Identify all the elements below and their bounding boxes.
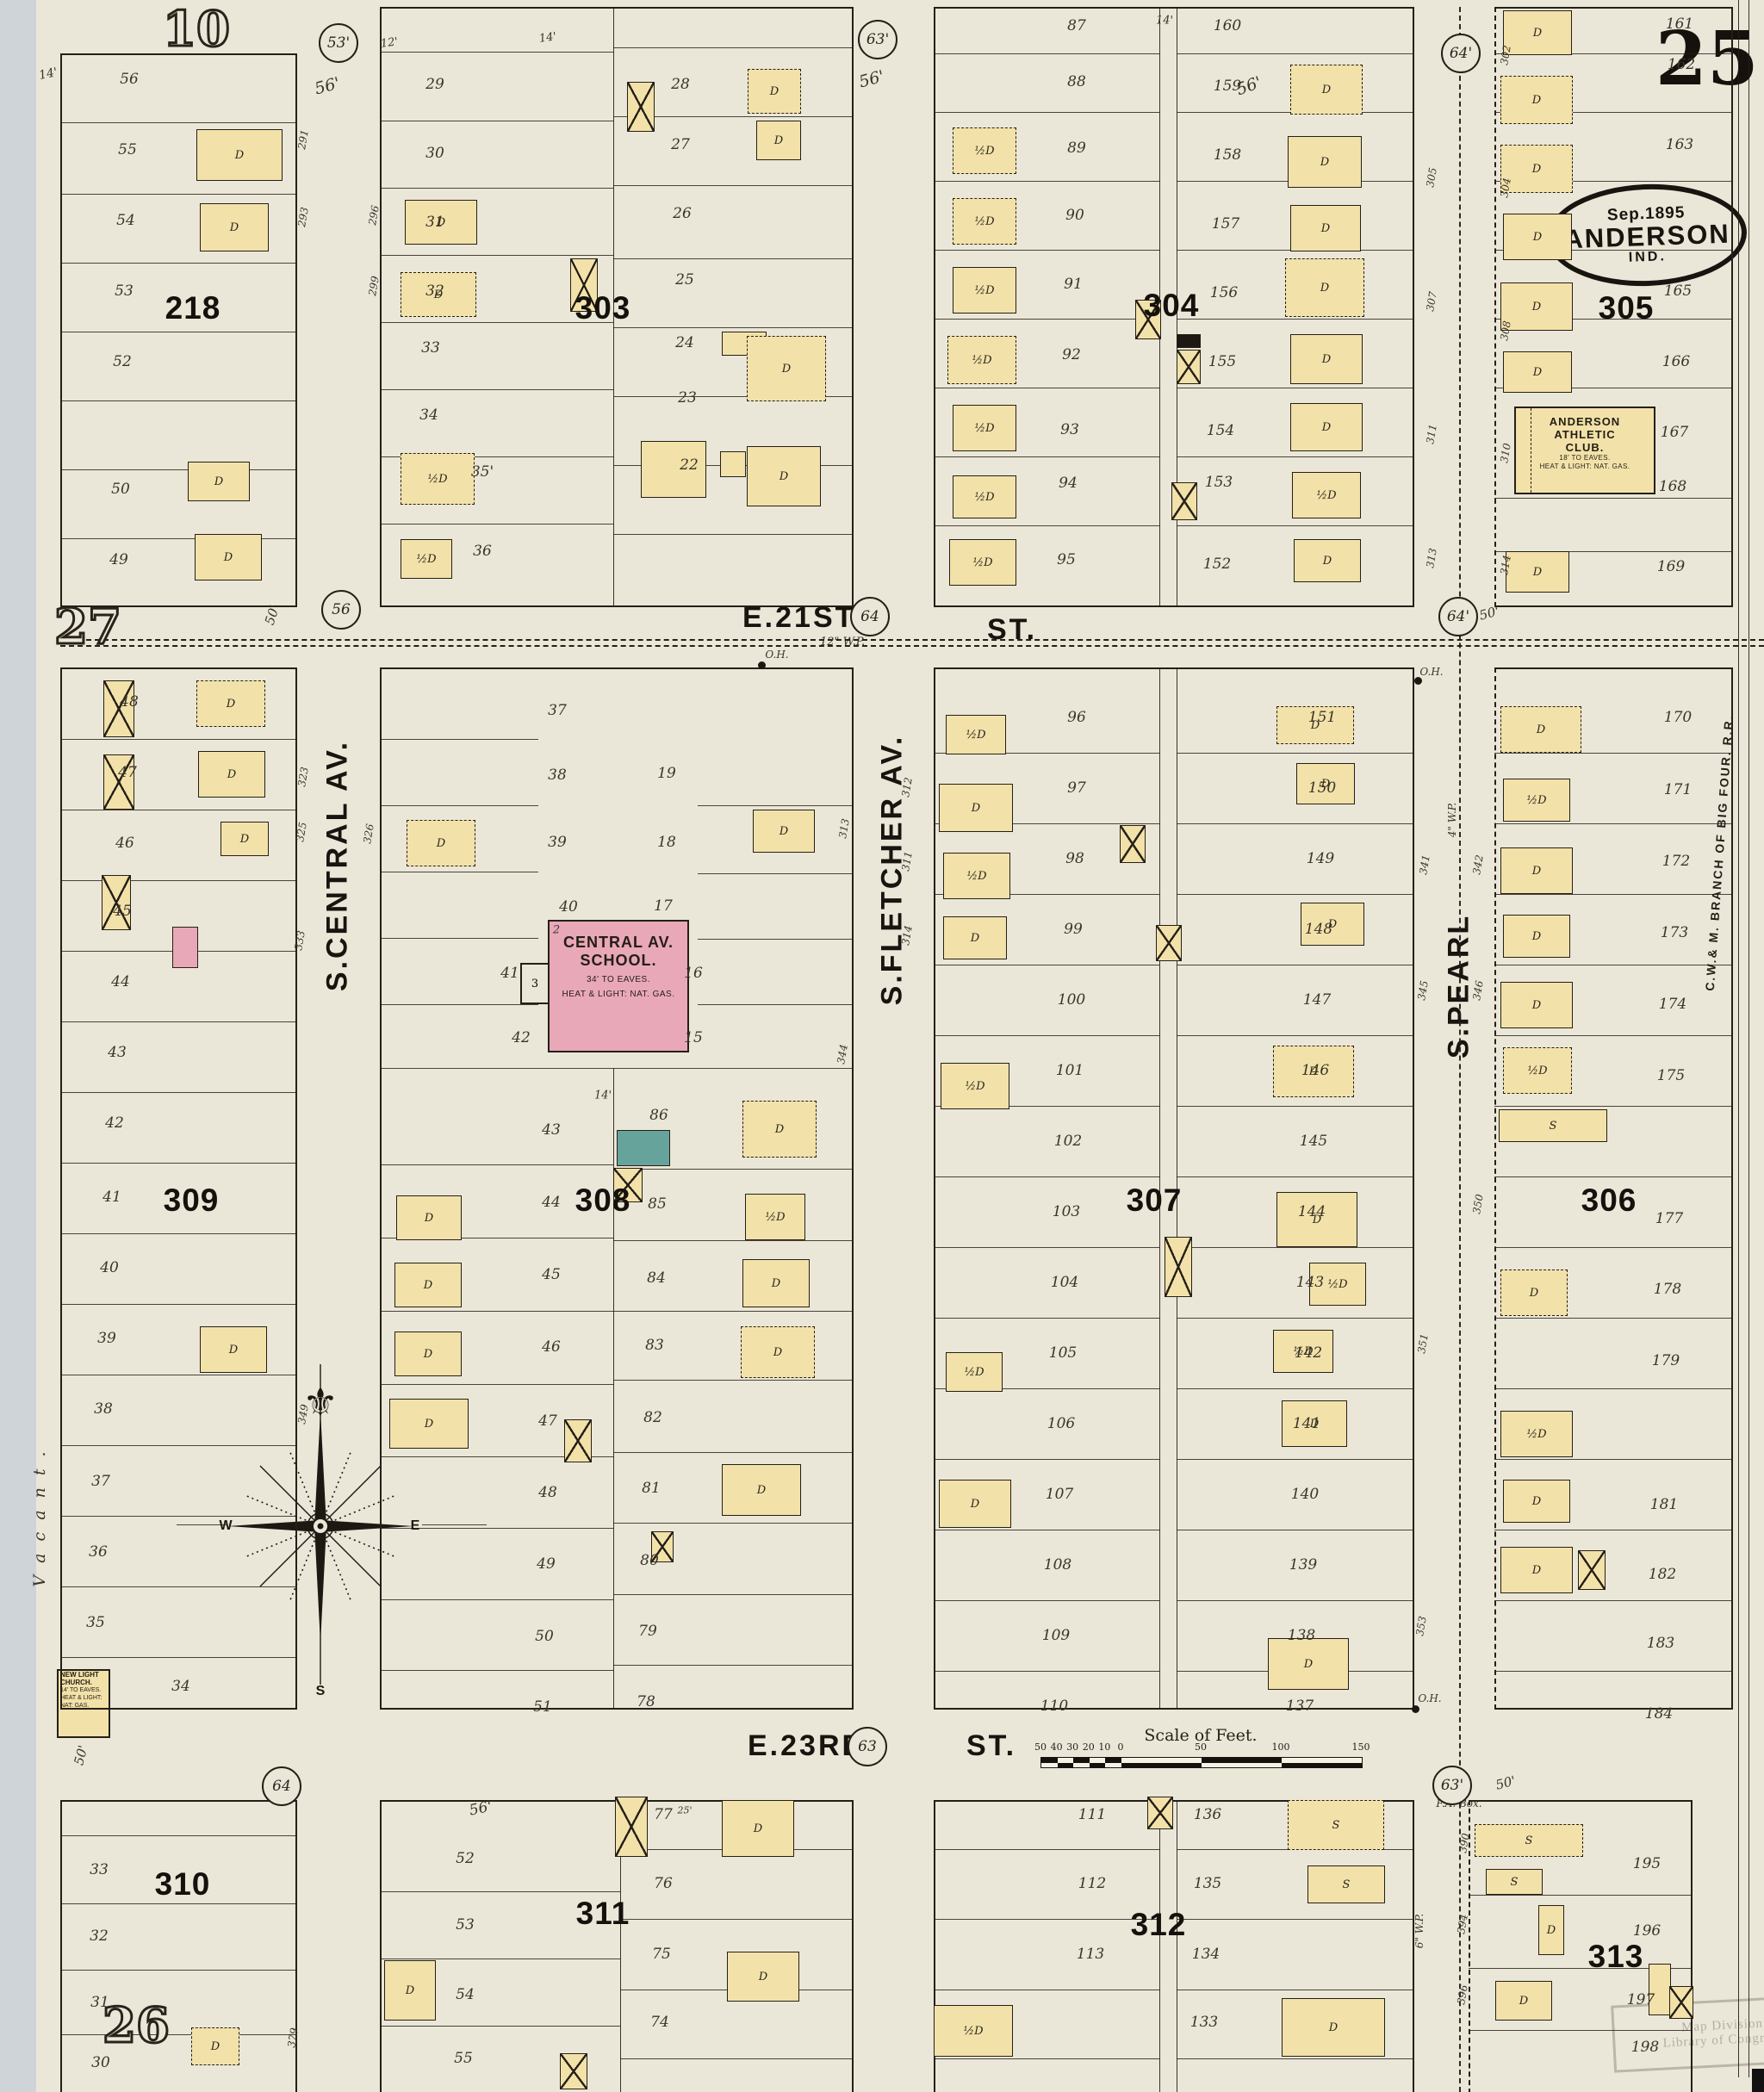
building: D (741, 1326, 815, 1378)
building-use-label: ½D (972, 354, 991, 367)
lot-line (934, 1247, 1159, 1248)
lot-number: 32 (425, 282, 444, 300)
outbuilding-x (1147, 1797, 1173, 1829)
building: D (198, 751, 265, 798)
scale-tick-label: 30 (1066, 1741, 1078, 1753)
lot-number: 105 (1049, 1344, 1077, 1362)
lot-line (1494, 1600, 1733, 1601)
lot-number: 90 (1065, 207, 1084, 224)
lot-number: 163 (1666, 136, 1693, 153)
building-use-label: D (773, 1346, 782, 1359)
lot-line (1177, 1530, 1414, 1530)
lot-number: 76 (654, 1875, 673, 1892)
building-use-label: S (1332, 1819, 1340, 1832)
lot-line (380, 1164, 613, 1165)
lot-line (60, 1586, 297, 1587)
scale-tick-label: 150 (1352, 1741, 1370, 1753)
building-use-label: D (772, 1277, 780, 1290)
building: ½D (1500, 1411, 1573, 1457)
building-use-label: D (1532, 865, 1541, 878)
building-use-label: ½D (1527, 1065, 1547, 1077)
lot-number: 47 (118, 764, 137, 781)
lot-line (60, 1233, 297, 1234)
building: D (389, 1399, 469, 1449)
lot-number: 26 (673, 205, 692, 222)
building-use-label: ½D (965, 1080, 984, 1093)
lot-number: 53 (456, 1916, 475, 1934)
lot-line (613, 534, 854, 535)
lot-number: 47 (538, 1412, 557, 1430)
lot-number: 80 (640, 1552, 659, 1569)
lot-number: 45 (113, 903, 132, 920)
scale-tick-label: 50 (1034, 1741, 1047, 1753)
lot-line (380, 1311, 613, 1312)
lot-number: 41 (102, 1189, 121, 1206)
building-use-label: ½D (974, 145, 994, 158)
building: D (200, 1326, 267, 1373)
lot-number: 95 (1057, 551, 1076, 568)
lot-number: 156 (1210, 284, 1238, 301)
lot-number: 50 (535, 1628, 554, 1645)
lot-number: 36 (89, 1543, 108, 1561)
building: ½D (946, 715, 1006, 754)
building: ½D (1292, 472, 1361, 518)
lot-number: 54 (456, 1986, 475, 2003)
building-use-label: D (214, 475, 223, 488)
building-use-label: D (770, 85, 779, 98)
map-line (380, 1068, 854, 1069)
lot-number: 184 (1645, 1705, 1673, 1723)
lot-number: 108 (1044, 1556, 1071, 1574)
building-use-label: D (1537, 723, 1545, 736)
lot-number: 139 (1289, 1556, 1317, 1574)
building-use-label: D (425, 1212, 433, 1225)
lot-number: 42 (105, 1114, 124, 1132)
building: D (1500, 1547, 1573, 1593)
building: D (200, 203, 269, 251)
lot-line (1494, 498, 1733, 499)
building-use-label: ½D (966, 870, 986, 883)
building: ½D (745, 1194, 805, 1240)
lot-line (934, 1459, 1159, 1460)
lot-line (1494, 1176, 1733, 1177)
map-annotation: 50' (1477, 603, 1500, 623)
lot-line (1177, 894, 1414, 895)
outbuilding-x (1171, 482, 1197, 520)
block-outline (60, 1800, 297, 2092)
lot-line (934, 1600, 1159, 1601)
building: ½D (401, 453, 475, 505)
utility-dot (758, 661, 766, 669)
lot-line (60, 739, 297, 740)
building-use-label: D (1533, 566, 1542, 579)
building-use-label: ½D (427, 473, 447, 486)
lot-line (60, 400, 297, 401)
map-annotation: 346 (1470, 980, 1486, 1002)
lot-line (934, 1671, 1159, 1672)
street-width-badge: 64 (850, 597, 890, 636)
lot-number: 92 (1062, 346, 1081, 363)
lot-number: 137 (1286, 1698, 1314, 1715)
building-use-label: D (1532, 163, 1541, 176)
lot-line (60, 1021, 297, 1022)
lot-number: 22 (680, 456, 699, 474)
lot-number: 53 (115, 282, 134, 300)
lot-line (620, 2058, 854, 2059)
lot-line (934, 1035, 1159, 1036)
lot-line (1177, 1388, 1414, 1389)
lot-number: 51 (533, 1698, 552, 1716)
map-annotation: 50' (71, 1743, 90, 1766)
lot-line (613, 1523, 854, 1524)
lot-number: 24 (675, 334, 694, 351)
lot-number: 45 (542, 1266, 561, 1283)
street-width-badge: 63' (858, 20, 898, 59)
building-use-label: D (782, 363, 791, 376)
lot-number: 169 (1657, 558, 1685, 575)
map-annotation: 333 (292, 930, 307, 952)
lot-line (934, 1176, 1159, 1177)
lot-line (380, 872, 538, 872)
map-annotation: 311 (1424, 424, 1439, 445)
map-annotation: 14' (538, 30, 557, 46)
block-number: 304 (1144, 288, 1200, 324)
building: ½D (953, 405, 1016, 451)
lot-line (698, 939, 854, 940)
lot-line (1469, 2030, 1693, 2031)
lot-line (613, 1665, 854, 1666)
lot-line (934, 1849, 1159, 1850)
lot-line (613, 1594, 854, 1595)
lot-number: 97 (1067, 779, 1086, 797)
building-use-label: D (1532, 94, 1541, 107)
building: D (748, 69, 801, 114)
lot-number: 136 (1194, 1806, 1221, 1823)
lot-number: 50 (111, 481, 130, 498)
building-use-label: ½D (1526, 794, 1546, 807)
building: D (1294, 539, 1361, 582)
lot-number: 36 (473, 543, 492, 560)
building-use-label: D (1322, 421, 1331, 434)
building: S (1475, 1824, 1583, 1857)
lot-number: 112 (1078, 1875, 1106, 1892)
building: S (1499, 1109, 1607, 1142)
building-use-label: ½D (966, 729, 985, 742)
map-annotation: 6" W.P. (1413, 1914, 1425, 1948)
lot-number: 165 (1664, 282, 1692, 300)
lot-number: 48 (120, 693, 139, 711)
lot-line (934, 525, 1159, 526)
building: D (1500, 982, 1573, 1028)
lot-number: 74 (650, 2014, 669, 2031)
building-use-label: D (1532, 1564, 1541, 1577)
lot-line (1494, 965, 1733, 965)
map-annotation: 307 (1424, 291, 1439, 313)
lot-number: 31 (425, 214, 444, 231)
lot-line (1177, 965, 1414, 965)
lot-number: 172 (1662, 853, 1690, 870)
map-line (1748, 0, 1749, 2077)
lot-number: 46 (542, 1338, 561, 1356)
building: D (1503, 10, 1572, 55)
building-use-label: D (775, 1123, 784, 1136)
map-annotation: 14' (594, 1089, 612, 1102)
lot-number: 33 (90, 1861, 109, 1878)
map-annotation: 4" W.P. (1446, 803, 1458, 837)
lot-number: 142 (1295, 1344, 1322, 1362)
lot-line (613, 1452, 854, 1453)
building-use-label: D (972, 802, 980, 815)
lot-number: 183 (1647, 1635, 1674, 1652)
lot-number: 27 (671, 136, 690, 153)
lot-line (380, 1004, 538, 1005)
lot-line (380, 1670, 613, 1671)
building-use-label: S (1343, 1878, 1351, 1891)
lot-line (934, 388, 1159, 388)
lot-number: 77 (654, 1806, 673, 1823)
building-use-label: D (1530, 1287, 1538, 1300)
lot-number: 181 (1650, 1496, 1678, 1513)
lot-number: 83 (645, 1337, 664, 1354)
lot-number: 158 (1214, 146, 1241, 164)
adjacent-sheet-number: 26 (102, 1997, 170, 2054)
building-use-label: D (754, 1822, 762, 1835)
building-use-label: D (229, 1344, 238, 1356)
building-use-label: S (1525, 1834, 1533, 1847)
lot-line (620, 1919, 854, 1920)
map-annotation: 351 (1415, 1333, 1431, 1355)
scale-tick-label: 40 (1051, 1741, 1063, 1753)
lot-number: 148 (1305, 921, 1332, 938)
lot-line (380, 389, 613, 390)
street-width-badge: 63 (848, 1727, 887, 1766)
street-label-e21st-st: ST. (987, 613, 1037, 647)
map-line (1738, 0, 1739, 2077)
lot-number: 174 (1659, 996, 1686, 1013)
building-use-label: D (971, 932, 979, 945)
building-use-label: D (240, 833, 249, 846)
lot-number: 56 (120, 71, 139, 88)
building: D (1290, 334, 1363, 384)
building-use-label: ½D (1526, 1428, 1546, 1441)
building-use-label: D (1532, 999, 1541, 1012)
building-use-label: D (1532, 930, 1541, 943)
lot-number: 38 (548, 767, 567, 784)
lot-line (380, 938, 538, 939)
building-use-label: D (1321, 222, 1330, 235)
lot-line (934, 181, 1159, 182)
outbuilding-x (564, 1419, 592, 1462)
map-annotation: 314 (899, 925, 915, 947)
lot-line (1177, 456, 1414, 457)
lot-number: 88 (1067, 73, 1086, 90)
building-use-label: D (437, 837, 445, 850)
street-center-dash (60, 639, 1764, 641)
block-number: 313 (1588, 1939, 1644, 1975)
lot-line (60, 1375, 297, 1375)
map-annotation: 311 (899, 851, 915, 872)
building-use-label: ½D (1327, 1278, 1347, 1291)
scale-tick-label: 20 (1083, 1741, 1095, 1753)
building: D (220, 822, 269, 856)
outbuilding-x (1165, 1237, 1192, 1297)
lot-line (1494, 1035, 1733, 1036)
map-annotation: 14' (1156, 15, 1173, 28)
lot-number: 161 (1666, 16, 1693, 33)
lot-line (934, 53, 1159, 54)
lot-number: 40 (559, 898, 578, 916)
adjacent-sheet-number: 27 (54, 599, 121, 655)
lot-number: 39 (548, 834, 567, 851)
lot-number: 146 (1301, 1062, 1329, 1079)
lot-number: 153 (1205, 474, 1233, 491)
map-annotation: O.H. (1419, 666, 1443, 678)
building: D (742, 1101, 817, 1158)
lot-line (380, 1528, 613, 1529)
lot-line (1494, 1106, 1733, 1107)
map-annotation: 293 (295, 207, 311, 228)
outbuilding-x (560, 2053, 587, 2089)
lot-line (934, 1530, 1159, 1530)
lot-line (1177, 753, 1414, 754)
building-use-label: D (757, 1484, 766, 1497)
lot-line (60, 1445, 297, 1446)
lot-number: 25 (675, 271, 694, 289)
building: D (1282, 1998, 1385, 2057)
lot-number: 134 (1192, 1946, 1220, 1963)
lot-number: 102 (1054, 1133, 1082, 1150)
outbuilding-x (1156, 925, 1182, 961)
building: D (1495, 1981, 1552, 2021)
map-annotation: O.H. (1418, 1692, 1441, 1704)
lot-line (380, 121, 613, 121)
vacant-label: V a c a n t . (30, 1448, 49, 1586)
street-width-badge: 56 (321, 590, 361, 630)
outbuilding-x (1669, 1986, 1693, 2019)
scale-tick-label: 0 (1118, 1741, 1124, 1753)
building-use-label: D (406, 1984, 414, 1997)
street-width-badge: 64' (1438, 597, 1478, 636)
building-use-label: D (1329, 2021, 1338, 2034)
lot-number: 175 (1657, 1067, 1685, 1084)
lot-number: 101 (1056, 1062, 1084, 1079)
lot-number: 157 (1212, 215, 1239, 233)
lot-number: 29 (425, 76, 444, 93)
building-use-label: ½D (964, 1366, 984, 1379)
building: D (747, 446, 821, 506)
street-label-e23rd-st: ST. (966, 1729, 1016, 1763)
lot-number: 141 (1293, 1415, 1320, 1432)
building: D (1268, 1638, 1349, 1690)
map-annotation: 313 (1424, 548, 1439, 569)
building: D (939, 1480, 1011, 1528)
building-use-label: D (1533, 366, 1542, 379)
building-use-label: D (1533, 27, 1542, 40)
lot-number: 81 (642, 1480, 661, 1497)
lot-line (60, 1304, 297, 1305)
building-use-label: ½D (765, 1211, 785, 1224)
lot-number: 43 (542, 1121, 561, 1139)
lot-line (60, 880, 297, 881)
lot-number: 37 (91, 1473, 110, 1490)
building: ½D (947, 336, 1016, 384)
lot-line (934, 1919, 1159, 1920)
lot-number: 140 (1291, 1486, 1319, 1503)
lot-line (60, 1835, 297, 1836)
building: D (1290, 65, 1363, 115)
map-annotation: 312 (899, 777, 915, 798)
map-annotation: O.H. (765, 649, 788, 661)
lot-line (698, 873, 854, 874)
building-use-label: ½D (416, 553, 436, 566)
lot-line (1177, 2058, 1414, 2059)
building-use-label: ½D (974, 422, 994, 435)
lot-line (1177, 1247, 1414, 1248)
building-use-label: D (1322, 353, 1331, 366)
map-annotation: 341 (1417, 854, 1432, 876)
lot-line (1177, 388, 1414, 388)
map-line (422, 1524, 487, 1525)
map-annotation: 291 (295, 129, 311, 151)
lot-line (380, 188, 613, 189)
building: D (1503, 351, 1572, 393)
building: D (747, 336, 826, 401)
lot-line (60, 2034, 297, 2035)
lot-line (1177, 1318, 1414, 1319)
lot-number: 18 (657, 834, 676, 851)
scan-edge-strip (0, 0, 36, 2092)
building: D (1503, 1480, 1570, 1523)
scale-bar-segment (1073, 1763, 1090, 1768)
building-use-label: D (424, 1348, 432, 1361)
building-use-label: D (780, 825, 788, 838)
building: D (188, 462, 250, 501)
lot-line (380, 739, 538, 740)
lot-line (60, 1970, 297, 1971)
lot-number: 44 (111, 973, 130, 990)
lot-line (1177, 1035, 1414, 1036)
lot-line (1494, 1318, 1733, 1319)
lot-number: 35 (86, 1614, 105, 1631)
building: D (1500, 847, 1573, 894)
lot-number: 93 (1060, 421, 1079, 438)
lot-number: 109 (1042, 1627, 1070, 1644)
lot-line (1177, 525, 1414, 526)
lot-line (60, 810, 297, 810)
map-annotation: 56' (313, 74, 342, 99)
scale-bar-segment (1041, 1763, 1058, 1768)
map-annotation: 323 (295, 767, 311, 788)
lot-number: 195 (1633, 1855, 1661, 1872)
scale-bar-segment (1202, 1763, 1282, 1768)
lot-line (60, 194, 297, 195)
building-use-label: D (774, 134, 783, 147)
map-annotation: 56' (857, 67, 886, 92)
lot-line (1494, 1247, 1733, 1248)
lot-number: 78 (637, 1693, 655, 1710)
building: ½D (941, 1063, 1009, 1109)
lot-line (60, 263, 297, 264)
map-annotation: 345 (1415, 980, 1431, 1002)
lot-line (60, 1092, 297, 1093)
building: D (1500, 1269, 1568, 1316)
map-annotation: 2 (553, 924, 560, 937)
lot-number: 151 (1308, 709, 1336, 726)
lot-line (1494, 1388, 1733, 1389)
building: D (1290, 403, 1363, 451)
building-use-label: D (224, 551, 233, 564)
scale-tick-label: 10 (1098, 1741, 1110, 1753)
